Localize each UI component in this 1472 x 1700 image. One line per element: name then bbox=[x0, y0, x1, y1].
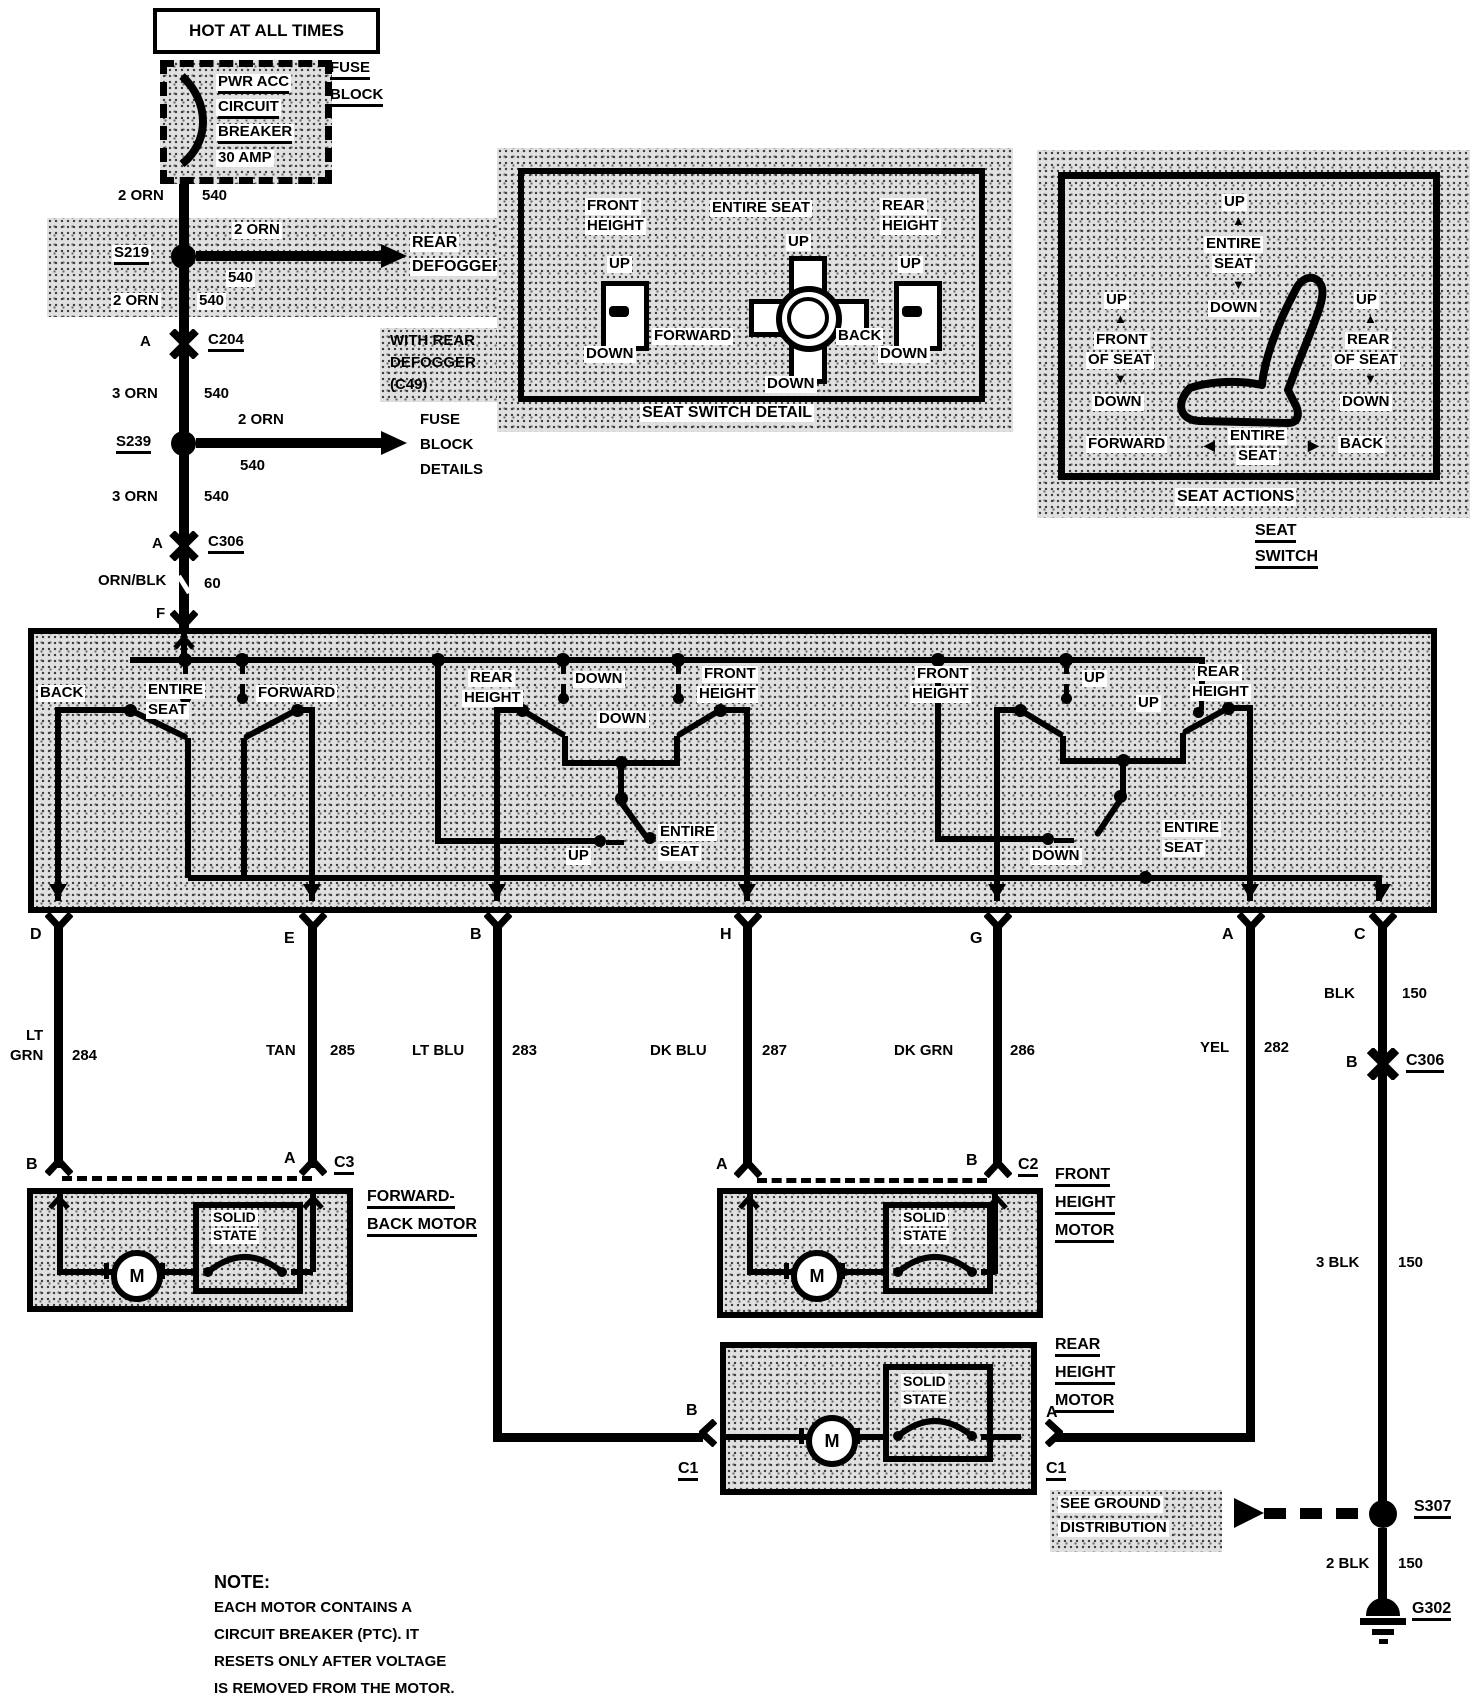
ground-bar1 bbox=[1360, 1618, 1406, 1625]
connector-chevron bbox=[45, 1158, 73, 1176]
connector-chevron bbox=[170, 610, 198, 628]
wire-h bbox=[743, 924, 752, 1168]
sw-entire-r1: ENTIRE bbox=[1162, 820, 1221, 837]
pin-f: F bbox=[154, 606, 167, 623]
pole-dot bbox=[615, 792, 628, 805]
rh-conn-right: C1 bbox=[1044, 1460, 1068, 1478]
ground-bar3 bbox=[1379, 1639, 1388, 1644]
pole-wire bbox=[994, 707, 1000, 901]
wire-b-num: 283 bbox=[510, 1043, 539, 1060]
fwd-back-label2: BACK MOTOR bbox=[365, 1216, 479, 1234]
with-defogger-line2: DEFOGGER bbox=[388, 355, 478, 372]
sw-forward: FORWARD bbox=[256, 685, 337, 702]
pin-e: E bbox=[282, 930, 297, 948]
motor-m: M bbox=[130, 1266, 145, 1286]
sw-front-height-r1: FRONT bbox=[915, 666, 971, 683]
pole-wire bbox=[58, 707, 130, 713]
motor-m-circle: M bbox=[111, 1250, 163, 1302]
up-arrow-icon: ▲ bbox=[1112, 312, 1129, 327]
exit-arrow bbox=[488, 884, 506, 899]
detail-front-height1: FRONT bbox=[585, 198, 641, 215]
solid-state-1: SOLID bbox=[901, 1210, 948, 1226]
actions-right-label1: REAR bbox=[1345, 332, 1392, 349]
rear-motor-label3: MOTOR bbox=[1053, 1392, 1116, 1410]
detail-rh-up: UP bbox=[898, 256, 923, 273]
switch-link bbox=[561, 664, 566, 694]
down-arrow-icon: ▼ bbox=[1112, 372, 1129, 387]
wire-g bbox=[993, 924, 1002, 1168]
pole-wire bbox=[997, 707, 1020, 713]
motor-wire bbox=[57, 1194, 63, 1272]
wire-h-color: DK BLU bbox=[648, 1043, 709, 1060]
motor-wire bbox=[747, 1194, 753, 1274]
wire-b-color: LT BLU bbox=[410, 1043, 466, 1060]
wire-d-color2: GRN bbox=[8, 1048, 45, 1065]
arrow-head bbox=[381, 244, 407, 268]
connector-symbol-c306b bbox=[1366, 1048, 1400, 1080]
motor-wire bbox=[310, 1194, 316, 1272]
feed-drop bbox=[435, 660, 441, 842]
c204-label: C204 bbox=[206, 332, 246, 349]
contact-dot bbox=[673, 693, 684, 704]
c204-pin: A bbox=[138, 334, 153, 351]
with-defogger-line3: (C49) bbox=[388, 377, 430, 394]
contact-dot bbox=[1042, 833, 1054, 845]
contact-dot bbox=[1193, 707, 1204, 718]
actions-bottom-back: BACK bbox=[1338, 436, 1385, 453]
sw-down-a: DOWN bbox=[573, 671, 625, 688]
fb-conn: C3 bbox=[332, 1154, 356, 1172]
branch-circuit: 540 bbox=[226, 270, 255, 287]
see-ground-2: DISTRIBUTION bbox=[1058, 1520, 1169, 1537]
sw-entire1: ENTIRE bbox=[146, 682, 205, 699]
feed-run bbox=[935, 836, 1050, 842]
wire-circuit: 540 bbox=[202, 386, 231, 403]
motor-wire bbox=[858, 1434, 886, 1440]
rocker-dash-icon bbox=[902, 306, 922, 317]
ptc-arc-icon bbox=[890, 1240, 980, 1278]
rear-defogger-label1: REAR bbox=[410, 234, 459, 252]
hot-at-all-times-box: HOT AT ALL TIMES bbox=[153, 8, 380, 54]
actions-left-down: DOWN bbox=[1092, 394, 1144, 411]
ground-2blk-num: 150 bbox=[1396, 1556, 1425, 1573]
connector-chevron bbox=[984, 1160, 1012, 1178]
breaker-line1: PWR ACC bbox=[216, 74, 291, 91]
sw-front-height2: HEIGHT bbox=[697, 686, 758, 703]
sw-rear-height2: HEIGHT bbox=[462, 690, 523, 707]
sw-up-a: UP bbox=[1082, 670, 1107, 687]
branch-wire bbox=[196, 251, 382, 261]
motor-wire bbox=[843, 1269, 883, 1275]
detail-es-down: DOWN bbox=[765, 376, 817, 393]
note-line3: RESETS ONLY AFTER VOLTAGE bbox=[212, 1654, 448, 1671]
return-bus bbox=[188, 875, 1381, 881]
hot-label: HOT AT ALL TIMES bbox=[189, 21, 344, 40]
sw-down-r: DOWN bbox=[1030, 848, 1082, 865]
actions-top-up: UP bbox=[1222, 194, 1247, 211]
connector-chevron bbox=[299, 1158, 327, 1176]
wire-circuit: 540 bbox=[197, 293, 226, 310]
ground-dash-wire bbox=[1264, 1508, 1370, 1519]
wire-color: 3 ORN bbox=[110, 489, 160, 506]
sw-entire-mid1: ENTIRE bbox=[658, 824, 717, 841]
sw-front-height1: FRONT bbox=[702, 666, 758, 683]
up-arrow-icon: ▲ bbox=[1362, 312, 1379, 327]
wire-d-num: 284 bbox=[70, 1048, 99, 1065]
pin-b: B bbox=[468, 926, 484, 944]
detail-entire-seat: ENTIRE SEAT bbox=[710, 200, 812, 217]
pole-dot bbox=[1114, 790, 1127, 803]
splice-dot bbox=[171, 431, 196, 456]
ground-arrow-icon bbox=[1234, 1498, 1264, 1528]
with-defogger-line1: WITH REAR bbox=[388, 333, 477, 350]
contact-dot bbox=[644, 832, 656, 844]
fb-pin-right: A bbox=[282, 1150, 298, 1168]
wire-c-lower bbox=[1378, 1528, 1387, 1602]
connector-symbol-c204 bbox=[168, 329, 200, 359]
seat-switch-title2: SWITCH bbox=[1253, 548, 1320, 566]
motor-wire bbox=[726, 1434, 808, 1440]
motor-terminal bbox=[799, 1428, 804, 1444]
solid-state-1: SOLID bbox=[211, 1210, 258, 1226]
detail-rear-height1: REAR bbox=[880, 198, 927, 215]
detail-es-up: UP bbox=[786, 234, 811, 251]
cross-ring-inner bbox=[787, 297, 829, 339]
pin-c: C bbox=[1352, 926, 1368, 944]
contact-dot bbox=[1061, 693, 1072, 704]
switch-link bbox=[606, 840, 624, 845]
wire-e bbox=[308, 924, 317, 1168]
note-line2: CIRCUIT BREAKER (PTC). IT bbox=[212, 1627, 421, 1644]
wire-circuit: 540 bbox=[200, 188, 229, 205]
rh-conn-left: C1 bbox=[676, 1460, 700, 1478]
rear-motor-label1: REAR bbox=[1053, 1336, 1102, 1354]
motor-wire bbox=[291, 1269, 313, 1275]
rh-pin-left: B bbox=[684, 1402, 700, 1420]
s307-label: S307 bbox=[1412, 1498, 1453, 1516]
pin-h: H bbox=[718, 926, 734, 944]
c306-label: C306 bbox=[206, 534, 246, 551]
exit-arrow bbox=[49, 884, 67, 899]
switch-link bbox=[1064, 664, 1069, 694]
exit-arrow bbox=[738, 884, 756, 899]
exit-arrow bbox=[303, 884, 321, 899]
wire-c bbox=[1378, 924, 1387, 1504]
actions-top-label1: ENTIRE bbox=[1204, 236, 1263, 253]
sw-back: BACK bbox=[38, 685, 85, 702]
pole-wire bbox=[494, 707, 500, 901]
ground-3blk-num: 150 bbox=[1396, 1255, 1425, 1272]
wire-d bbox=[54, 924, 63, 1168]
wire-color: 3 ORN bbox=[110, 386, 160, 403]
seat-switch-title1: SEAT bbox=[1253, 522, 1298, 540]
branch-circuit: 540 bbox=[238, 458, 267, 475]
sw-front-height-r2: HEIGHT bbox=[910, 686, 971, 703]
motor-m: M bbox=[810, 1266, 825, 1286]
ground-symbol-icon bbox=[1366, 1598, 1400, 1616]
s307-dot bbox=[1369, 1500, 1397, 1528]
wire-h-num: 287 bbox=[760, 1043, 789, 1060]
motor-wire bbox=[981, 1434, 1021, 1440]
s219-label: S219 bbox=[112, 245, 151, 262]
wire-circuit: 60 bbox=[202, 576, 223, 593]
sw-entire-mid2: SEAT bbox=[658, 844, 701, 861]
pole-wire bbox=[497, 707, 522, 713]
actions-bottom-label2: SEAT bbox=[1236, 448, 1279, 465]
return-wire bbox=[241, 738, 247, 878]
rocker-dash-icon bbox=[609, 306, 629, 317]
wire-color: 2 ORN bbox=[111, 293, 161, 310]
fwd-back-label1: FORWARD- bbox=[365, 1188, 457, 1206]
fuse-block-label1: FUSE bbox=[328, 60, 372, 77]
wiring-diagram: HOT AT ALL TIMES PWR ACC CIRCUIT BREAKER… bbox=[0, 0, 1472, 1700]
fuse-details-line1: FUSE bbox=[418, 412, 462, 429]
contact-dot bbox=[237, 693, 248, 704]
branch-wire bbox=[196, 438, 382, 448]
motor-wire bbox=[163, 1269, 193, 1275]
wire-b bbox=[493, 924, 502, 1441]
return-wire bbox=[185, 738, 191, 878]
fh-pin-left: A bbox=[714, 1156, 730, 1174]
solid-state-1: SOLID bbox=[901, 1374, 948, 1390]
wire-d-color1: LT bbox=[24, 1028, 45, 1045]
exit-arrow bbox=[1373, 884, 1391, 899]
fh-pin-right: B bbox=[964, 1152, 980, 1170]
ground-c306-pin: B bbox=[1344, 1054, 1360, 1072]
breaker-line4: 30 AMP bbox=[216, 150, 274, 167]
detail-es-forward: FORWARD bbox=[652, 328, 733, 345]
right-arrow-icon: ▶ bbox=[1306, 438, 1321, 454]
detail-fh-up: UP bbox=[607, 256, 632, 273]
connector-line bbox=[62, 1176, 312, 1181]
sw-rear-height-r1: REAR bbox=[1195, 664, 1242, 681]
detail-caption: SEAT SWITCH DETAIL bbox=[640, 404, 814, 422]
ground-bar2 bbox=[1372, 1629, 1394, 1635]
wire-a bbox=[1246, 924, 1255, 1441]
fuse-details-line3: DETAILS bbox=[418, 462, 485, 479]
note-line4: IS REMOVED FROM THE MOTOR. bbox=[212, 1681, 457, 1698]
feed-run bbox=[435, 838, 603, 844]
actions-bottom-forward: FORWARD bbox=[1086, 436, 1167, 453]
splice-dot bbox=[171, 244, 196, 269]
actions-left-up: UP bbox=[1104, 292, 1129, 309]
sw-up-mid: UP bbox=[566, 848, 591, 865]
actions-left-label1: FRONT bbox=[1094, 332, 1150, 349]
detail-rh-down: DOWN bbox=[878, 346, 930, 363]
actions-caption: SEAT ACTIONS bbox=[1175, 488, 1296, 506]
pole-wire bbox=[55, 707, 61, 901]
pin-d: D bbox=[28, 926, 44, 944]
detail-es-back: BACK bbox=[836, 328, 883, 345]
up-arrow-icon: ▲ bbox=[1230, 214, 1247, 229]
down-arrow-icon: ▼ bbox=[1362, 372, 1379, 387]
rear-motor-label2: HEIGHT bbox=[1053, 1364, 1117, 1382]
fuse-details-line2: BLOCK bbox=[418, 437, 475, 454]
switch-link bbox=[1054, 838, 1074, 843]
wire-g-num: 286 bbox=[1008, 1043, 1037, 1060]
ground-c306-label: C306 bbox=[1404, 1052, 1446, 1070]
actions-left-label2: OF SEAT bbox=[1086, 352, 1154, 369]
connector-chevron bbox=[699, 1419, 717, 1447]
pin-a: A bbox=[1220, 926, 1236, 944]
arrow-head bbox=[381, 431, 407, 455]
connector-symbol-c306 bbox=[168, 531, 200, 561]
wire-a-color: YEL bbox=[1198, 1040, 1231, 1057]
left-arrow-icon: ◀ bbox=[1202, 438, 1217, 454]
exit-arrow bbox=[1241, 884, 1259, 899]
wire-b-run bbox=[493, 1433, 703, 1442]
front-motor-label1: FRONT bbox=[1053, 1166, 1112, 1184]
detail-rear-height2: HEIGHT bbox=[880, 218, 941, 235]
connector-line bbox=[757, 1178, 987, 1183]
pole-wire bbox=[309, 707, 315, 901]
up-chevron-icon bbox=[173, 636, 195, 650]
fh-conn: C2 bbox=[1016, 1156, 1040, 1174]
ptc-arc-icon bbox=[890, 1404, 980, 1442]
ground-3blk: 3 BLK bbox=[1314, 1255, 1361, 1272]
seat-profile-icon bbox=[1168, 268, 1344, 438]
note-title: NOTE: bbox=[212, 1572, 272, 1592]
actions-right-down: DOWN bbox=[1340, 394, 1392, 411]
s239-label: S239 bbox=[114, 434, 153, 451]
contact-dot bbox=[558, 693, 569, 704]
switch-link bbox=[676, 664, 681, 694]
wire-a-run bbox=[1055, 1433, 1255, 1442]
contact-dot bbox=[594, 835, 606, 847]
wire-c-num: 150 bbox=[1400, 986, 1429, 1003]
front-motor-label2: HEIGHT bbox=[1053, 1194, 1117, 1212]
connector-chevron bbox=[734, 1160, 762, 1178]
wire-e-num: 285 bbox=[328, 1043, 357, 1060]
breaker-line3: BREAKER bbox=[216, 124, 294, 141]
motor-m-circle: M bbox=[806, 1415, 858, 1467]
switch-link bbox=[240, 664, 245, 694]
circuit-breaker-icon bbox=[172, 72, 216, 170]
wire-color: ORN/BLK bbox=[96, 573, 168, 590]
c306-pin: A bbox=[150, 536, 165, 553]
pin-g: G bbox=[968, 930, 984, 948]
sw-entire2: SEAT bbox=[146, 702, 189, 719]
pole-wire bbox=[744, 707, 750, 901]
pole-wire bbox=[1247, 705, 1253, 901]
wire-color: 2 ORN bbox=[116, 188, 166, 205]
g302-label: G302 bbox=[1410, 1600, 1453, 1618]
wire-g-color: DK GRN bbox=[892, 1043, 955, 1060]
actions-bottom-label1: ENTIRE bbox=[1228, 428, 1287, 445]
motor-wire bbox=[981, 1269, 995, 1275]
sw-entire-r2: SEAT bbox=[1162, 840, 1205, 857]
branch-color: 2 ORN bbox=[232, 222, 282, 239]
breaker-line2: CIRCUIT bbox=[216, 99, 281, 116]
wire-c-color: BLK bbox=[1322, 986, 1357, 1003]
connector-chevron bbox=[1045, 1419, 1063, 1447]
sw-rear-height-r2: HEIGHT bbox=[1190, 684, 1251, 701]
ptc-arc-icon bbox=[200, 1240, 290, 1278]
fuse-block-label2: BLOCK bbox=[328, 87, 385, 104]
detail-fh-down: DOWN bbox=[584, 346, 636, 363]
ground-2blk: 2 BLK bbox=[1324, 1556, 1371, 1573]
wire-a-num: 282 bbox=[1262, 1040, 1291, 1057]
see-ground-1: SEE GROUND bbox=[1058, 1496, 1163, 1513]
note-line1: EACH MOTOR CONTAINS A bbox=[212, 1600, 414, 1617]
front-motor-label3: MOTOR bbox=[1053, 1222, 1116, 1240]
junction-dot bbox=[1139, 871, 1152, 884]
actions-right-up: UP bbox=[1354, 292, 1379, 309]
rear-defogger-label2: DEFOGGER bbox=[410, 258, 506, 276]
motor-m-circle: M bbox=[791, 1250, 843, 1302]
motor-m: M bbox=[825, 1431, 840, 1451]
motor-terminal bbox=[784, 1263, 789, 1279]
sw-down-b: DOWN bbox=[597, 711, 649, 728]
wire-e-color: TAN bbox=[264, 1043, 298, 1060]
detail-front-height2: HEIGHT bbox=[585, 218, 646, 235]
sw-rear-height1: REAR bbox=[468, 670, 515, 687]
fb-pin-left: B bbox=[24, 1156, 40, 1174]
exit-arrow bbox=[988, 884, 1006, 899]
bus-line bbox=[130, 657, 1205, 663]
branch-color: 2 ORN bbox=[236, 412, 286, 429]
motor-terminal bbox=[104, 1263, 109, 1279]
wire-circuit: 540 bbox=[202, 489, 231, 506]
sw-up-b: UP bbox=[1136, 695, 1161, 712]
